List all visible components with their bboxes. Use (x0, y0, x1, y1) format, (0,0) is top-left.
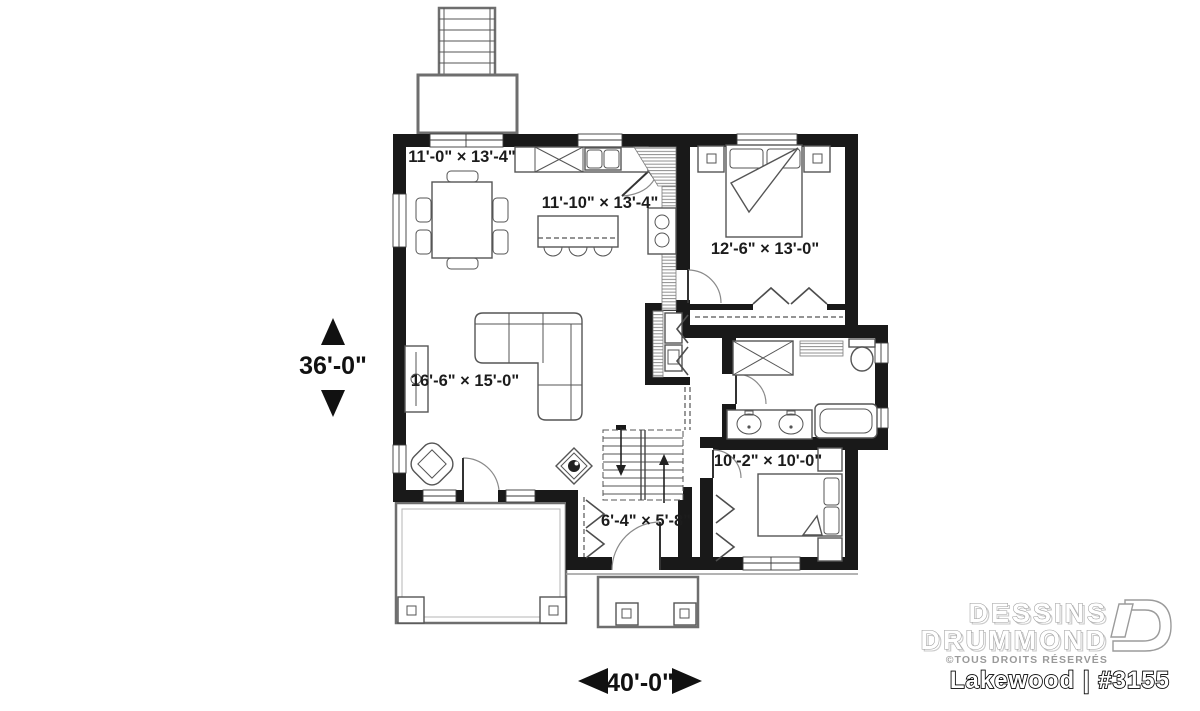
brand-line2: DRUMMOND (921, 625, 1108, 655)
bathtub (815, 404, 877, 438)
linen-shelves (800, 341, 843, 356)
rights-notice: ©TOUS DROITS RÉSERVÉS (946, 653, 1108, 666)
floor-plan-page: 11'-0" × 13'-4" 11'-10" × 13'-4" 12'-6" … (0, 0, 1200, 711)
window-kitchen-top (578, 134, 622, 147)
window-living-bottom-1 (423, 490, 456, 502)
front-porch (566, 574, 858, 627)
window-living-left (393, 445, 406, 473)
double-vanity (727, 410, 812, 439)
plan-name: Lakewood | #3155 (950, 667, 1170, 694)
master-nightstand-left (698, 146, 724, 172)
depth-dimension: 36'-0" (299, 318, 367, 417)
living-room-furniture (405, 313, 592, 489)
wood-stove (556, 448, 592, 484)
depth-dimension-label: 36'-0" (299, 352, 367, 380)
brand-d-logo (1111, 600, 1171, 651)
rear-deck-and-stairs (418, 8, 517, 133)
bedroom2-closet (716, 495, 734, 561)
master-bedroom-furniture (695, 145, 843, 317)
master-bedroom-door (688, 270, 721, 303)
master-closet (695, 288, 843, 317)
window-bedroom2-bottom (743, 557, 800, 570)
range (648, 208, 676, 254)
armchair (407, 439, 458, 490)
sectional-sofa (475, 313, 582, 420)
toilet (849, 339, 875, 371)
staircase (603, 387, 690, 503)
shower (733, 341, 793, 375)
bathroom-door (736, 374, 766, 404)
window-dining-top (430, 134, 503, 147)
brand-block: DESSINS DESSINS DRUMMOND DRUMMOND ©TOUS … (921, 598, 1171, 694)
kitchen-fixtures (515, 147, 676, 310)
master-bedroom-dims-label: 12'-6" × 13'-0" (711, 240, 819, 258)
living-room-dims-label: 16'-6" × 15'-0" (411, 372, 519, 390)
window-living-bottom-2 (506, 490, 535, 502)
master-nightstand-right (804, 146, 830, 172)
width-dimension: 40'-0" (578, 668, 702, 697)
bedroom2-dims-label: 10'-2" × 10'-0" (714, 452, 822, 470)
pantry-closet (653, 311, 688, 377)
brand-line1: DESSINS (968, 598, 1108, 628)
window-dining-left (393, 194, 406, 247)
width-dimension-label: 40'-0" (606, 669, 674, 697)
kitchen-island (538, 216, 618, 256)
bathroom-fixtures (727, 339, 877, 439)
kitchen-sink (585, 148, 621, 170)
dining-dims-label: 11'-0" × 13'-4" (408, 148, 515, 166)
kitchen-dims-label: 11'-10" × 13'-4" (542, 194, 659, 212)
entry-dims-label: 6'-4" × 5'-8" (601, 512, 691, 530)
floor-plan-canvas: 11'-0" × 13'-4" 11'-10" × 13'-4" 12'-6" … (0, 0, 1200, 711)
living-porch-door (463, 458, 499, 490)
covered-porch-left (396, 503, 566, 623)
bedroom2-nightstand-bottom (818, 538, 842, 561)
dining-furniture (416, 171, 508, 269)
window-bathroom-right-1 (875, 343, 888, 363)
